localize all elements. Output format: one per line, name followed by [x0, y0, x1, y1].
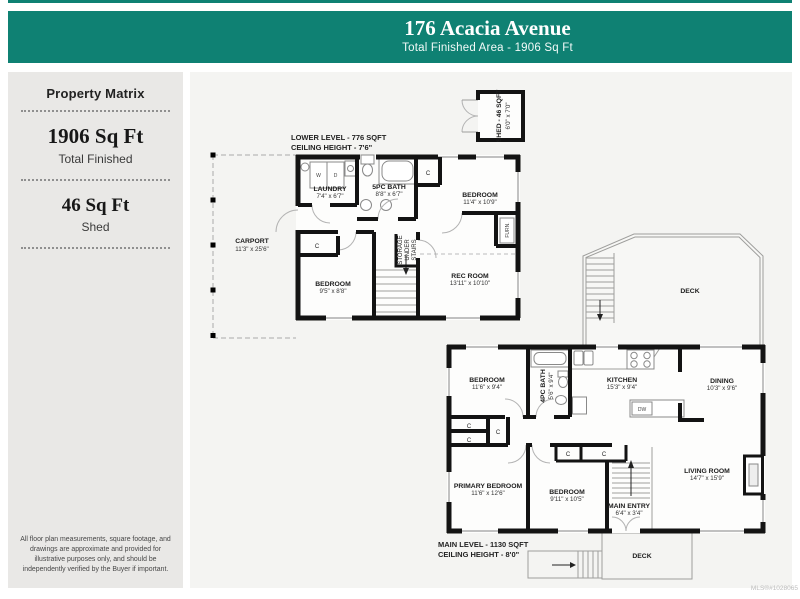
closet-label: C — [315, 244, 320, 250]
closet-label: C — [566, 452, 571, 458]
room-dims-carport: 11'3" x 25'6" — [235, 246, 268, 253]
room-dims-main-bedroom2: 9'11" x 10'5" — [550, 496, 583, 503]
toilet-tank — [361, 155, 374, 164]
carport-post — [211, 198, 216, 203]
room-label-dining: DINING — [710, 378, 734, 385]
room-dims-lower-bedroom2: 9'5" x 8'8" — [319, 288, 346, 295]
kitchen-sink — [584, 351, 593, 365]
mls-number: MLS®#1028065 — [751, 585, 798, 592]
upper-deck: DECK — [583, 234, 763, 345]
closet-label: C — [426, 171, 431, 177]
room-label-rec-room: REC ROOM — [451, 273, 489, 280]
toilet — [559, 377, 568, 388]
room-dims-lower-bedroom1: 11'4" x 10'9" — [463, 199, 496, 206]
washer-label: W — [316, 173, 321, 179]
carport-post — [211, 153, 216, 158]
shed-label: SHED - 46 SQFT — [496, 89, 503, 142]
room-dims-dining: 10'3" x 9'6" — [707, 385, 738, 392]
room-label-main-bedroom1: BEDROOM — [469, 377, 505, 384]
dishwasher-label: DW — [638, 407, 647, 413]
carport-post — [211, 288, 216, 293]
room-label-living-room: LIVING ROOM — [684, 468, 730, 475]
closet-label: C — [496, 430, 501, 436]
carport-post — [211, 243, 216, 248]
room-label-4pc-bath: 4PC BATH — [540, 369, 547, 403]
furnace-label: FURN. — [505, 222, 511, 237]
room-dims-laundry: 7'4" x 6'7" — [316, 193, 343, 200]
room-label-main-bedroom2: BEDROOM — [549, 489, 585, 496]
room-label-main-entry: MAIN ENTRY — [608, 503, 651, 510]
room-label-kitchen: KITCHEN — [607, 377, 637, 384]
room-label-carport: CARPORT — [235, 238, 269, 245]
dryer-label: D — [334, 173, 338, 179]
room-label-primary-bedroom: PRIMARY BEDROOM — [454, 483, 523, 490]
fridge — [573, 397, 587, 414]
toilet — [363, 164, 373, 176]
floor-plan-canvas: SHED - 46 SQFT 6'0" x 7'0" LOWER LEVEL -… — [0, 0, 800, 599]
carport-post — [211, 333, 216, 338]
storage-label-3: STAIRS — [412, 239, 418, 260]
room-label-lower-bedroom1: BEDROOM — [462, 192, 498, 199]
bath-sink — [556, 396, 567, 405]
room-label-lower-deck: DECK — [632, 553, 651, 560]
lower-level-ceiling: CEILING HEIGHT - 7'6" — [291, 143, 373, 152]
room-dims-5pc-bath: 8'8" x 6'7" — [375, 191, 402, 198]
utility-sink — [301, 163, 309, 171]
room-label-upper-deck: DECK — [680, 288, 699, 295]
room-label-5pc-bath: 5PC BATH — [372, 184, 406, 191]
fireplace — [745, 456, 763, 494]
shed-dims: 6'0" x 7'0" — [505, 102, 512, 129]
floor-plan-page: 176 Acacia Avenue Total Finished Area - … — [0, 0, 800, 599]
room-dims-primary-bedroom: 11'6" x 12'6" — [471, 490, 504, 497]
lower-level-title: LOWER LEVEL - 776 SQFT — [291, 133, 387, 142]
closet-label: C — [467, 424, 472, 430]
room-dims-main-bedroom1: 11'6" x 9'4" — [472, 384, 502, 391]
room-dims-living-room: 14'7" x 15'9" — [690, 475, 724, 482]
room-dims-kitchen: 15'3" x 9'4" — [607, 384, 638, 391]
storage-label-1: STORAGE — [398, 235, 404, 264]
storage-label-2: UNDER — [405, 239, 411, 261]
room-dims-main-entry: 6'4" x 3'4" — [615, 510, 642, 517]
room-dims-4pc-bath: 5'6" x 9'4" — [548, 372, 555, 399]
main-level-ceiling: CEILING HEIGHT - 8'0" — [438, 550, 520, 559]
kitchen-sink — [574, 351, 583, 365]
bath-sink — [361, 200, 372, 211]
closet-label: C — [602, 452, 607, 458]
room-dims-rec-room: 13'11" x 10'10" — [450, 280, 490, 287]
room-label-laundry: LAUNDRY — [314, 186, 347, 193]
main-level-title: MAIN LEVEL - 1130 SQFT — [438, 540, 529, 549]
room-label-lower-bedroom2: BEDROOM — [315, 281, 351, 288]
closet-label: C — [467, 438, 472, 444]
